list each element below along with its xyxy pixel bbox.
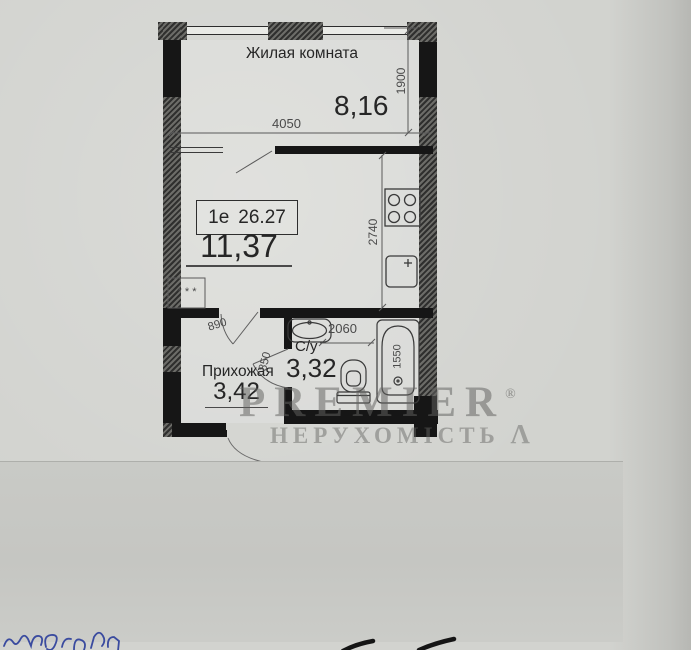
floor-plan-photo: Жилая комната 8,16 4050 1900 1е 26.27 11… bbox=[0, 0, 691, 650]
pen-marks bbox=[343, 639, 454, 650]
handwriting-scribble bbox=[4, 633, 119, 650]
annotations-layer bbox=[0, 0, 691, 650]
